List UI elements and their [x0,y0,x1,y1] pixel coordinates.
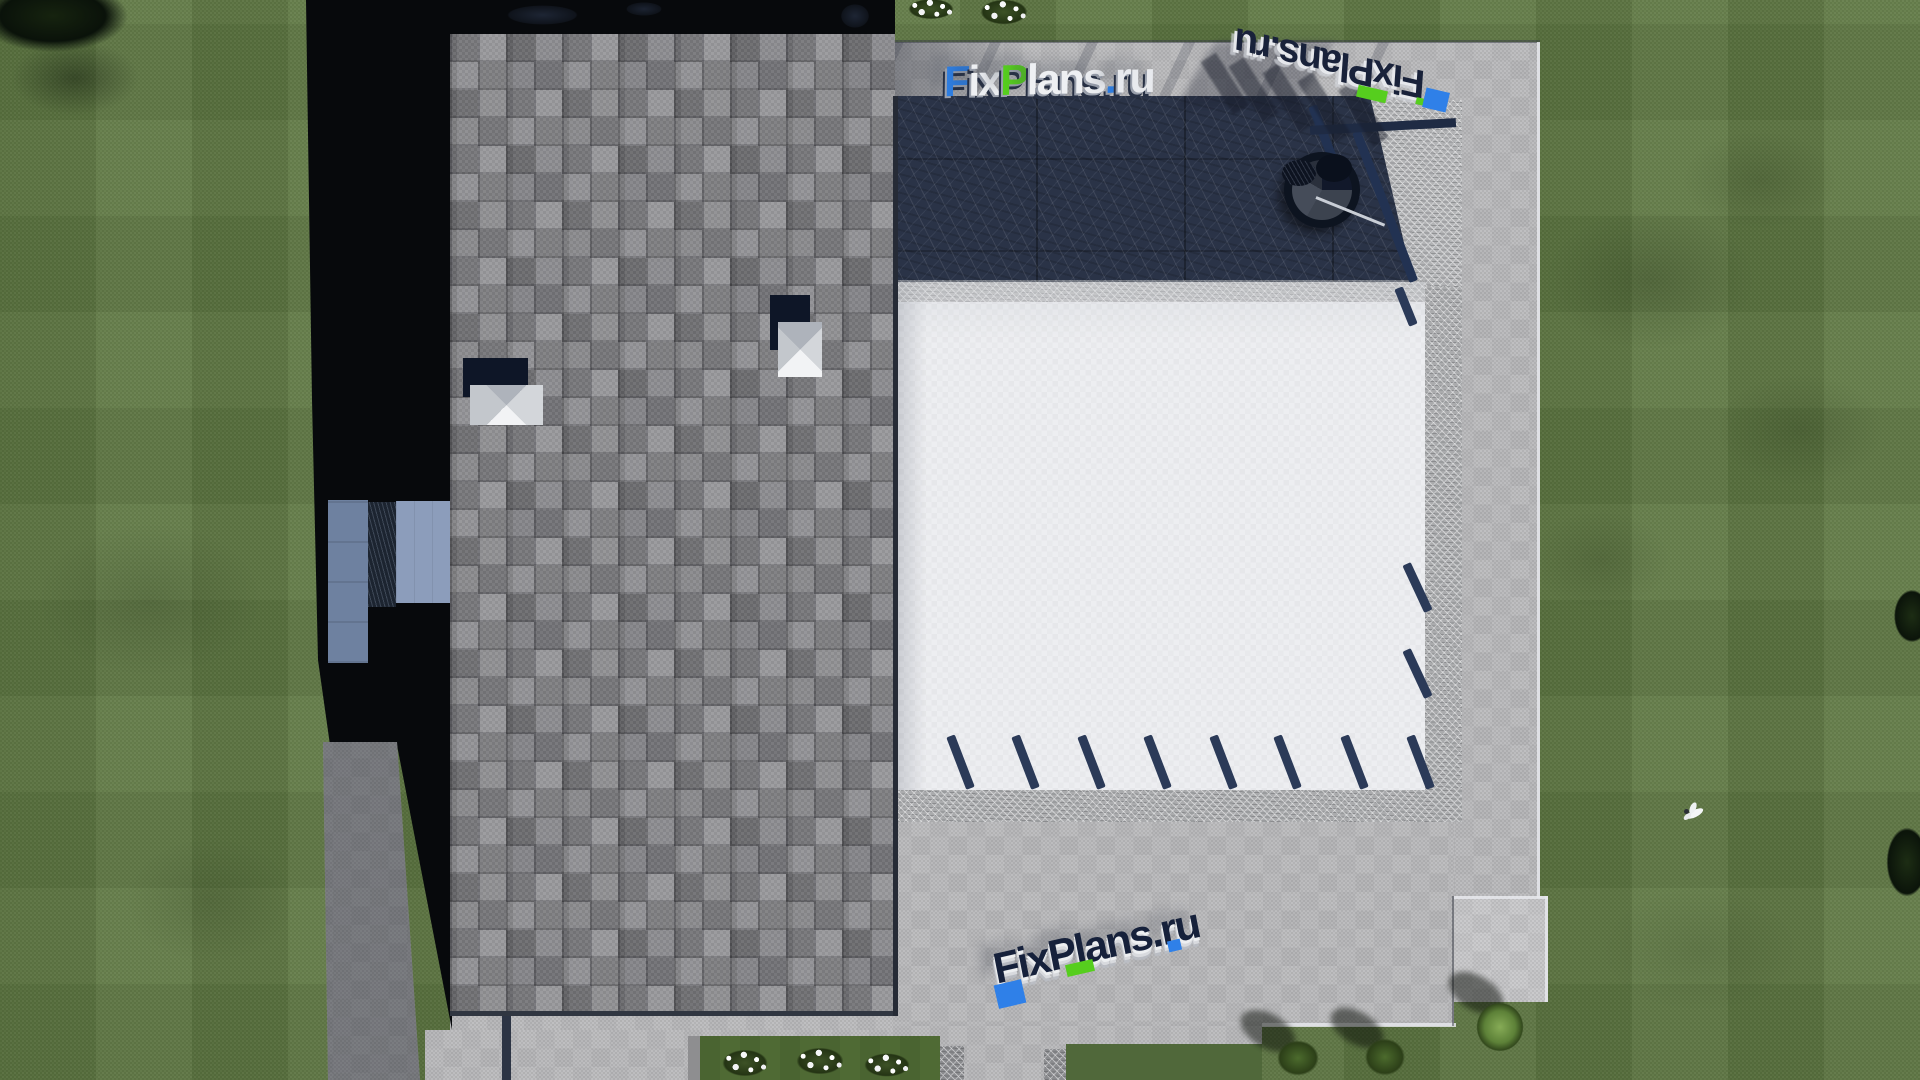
bed-curb-stone [940,1046,964,1080]
flower-shrub [716,1046,774,1080]
planting-bed [1066,1044,1262,1080]
bed-curb [688,1036,700,1080]
watermark-bottom: FixPlans.ru [988,908,1248,1018]
watermark-letter: . [1105,55,1116,104]
step-right-edge [1545,896,1548,1002]
watermark-letter: ru [1114,54,1154,104]
lawn-shrub [1360,1034,1410,1080]
roof-junction-seam [893,96,898,1016]
watermark-letter: F [944,58,969,108]
shaded-bush [620,0,668,18]
flower-shrub [858,1050,916,1080]
flat-roof-top-band [893,280,1425,302]
aerial-house-render: FixPlans.ru FixPlans.ru FixPlans.ru [0,0,1920,1080]
lawn-shrub [1272,1036,1324,1080]
watermark-top: FixPlans.ru [944,54,1154,107]
side-patio-slab [328,500,368,663]
shingle-roof [450,34,895,1016]
hanging-chair-back [1316,154,1352,182]
watermark-letter: ix [968,57,1001,107]
apron-expansion-joint [502,1016,511,1080]
bird [1680,798,1716,834]
bed-curb-stone [1044,1049,1066,1080]
flat-roof [893,282,1425,790]
shaded-bush [495,2,590,28]
side-patio-bush [368,502,396,607]
tree-canopy [1882,820,1920,904]
shingle-roof-eave [450,1011,895,1016]
walkway-right-edge [1537,42,1540,898]
lawn-shrub [1472,998,1528,1056]
skylight-dome [470,385,543,425]
gravel-border-bottom [893,788,1462,822]
flower-shrub [790,1044,850,1078]
apron-under-roof [450,1014,893,1030]
bird-head [1684,809,1689,814]
step-top-edge [1454,896,1548,899]
watermark-letter: P [1000,56,1027,106]
terrace-plant [1282,160,1316,186]
side-patio-slab-bright [396,501,453,603]
tree-shade [0,28,160,128]
skylight-dome [778,322,822,377]
tree-canopy [1890,584,1920,648]
watermark-letter: lans [1027,55,1106,106]
shaded-bush [836,0,874,32]
step-seam [1452,896,1454,1026]
